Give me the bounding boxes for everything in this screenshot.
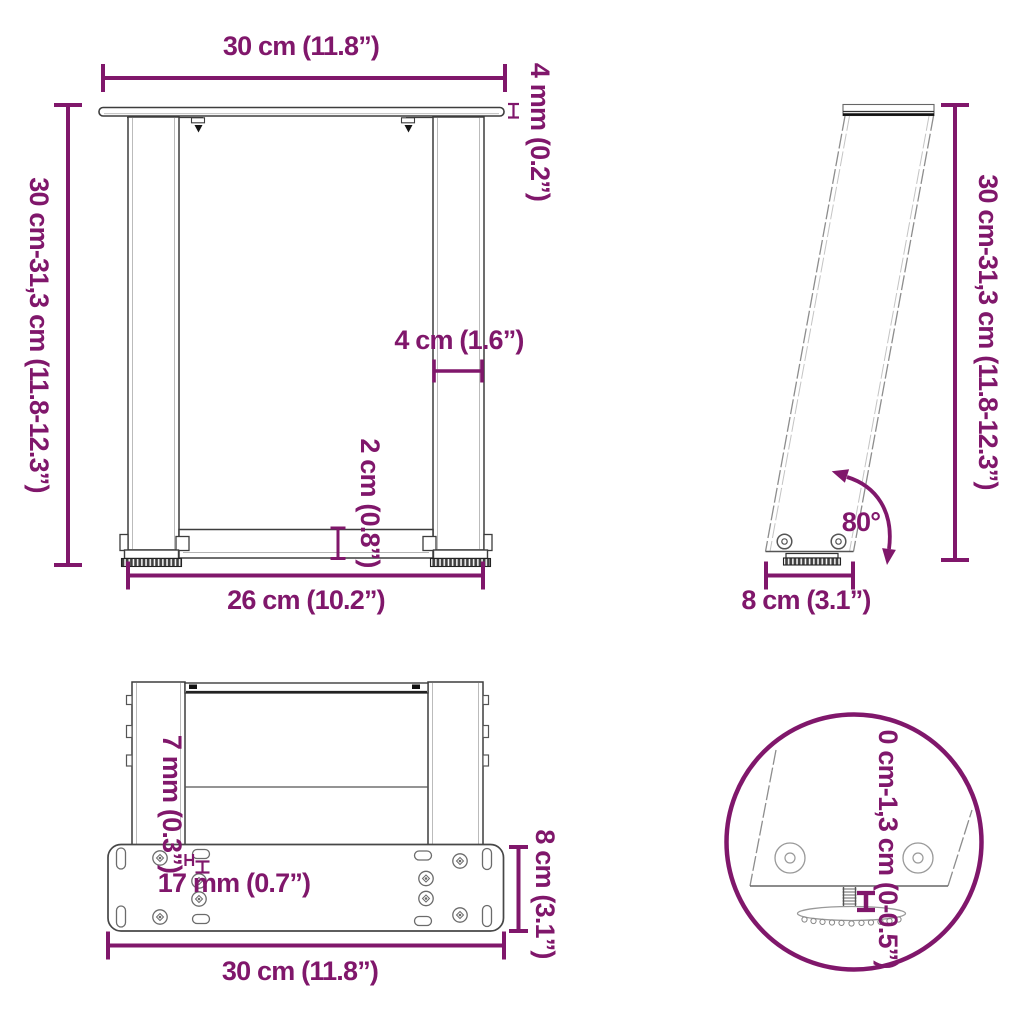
dim-side-height: 30 cm-31,3 cm (11.8-12.3”) bbox=[974, 174, 1002, 489]
side-view-drawing bbox=[766, 105, 935, 566]
dim-front-leg-width: 4 cm (1.6”) bbox=[394, 326, 523, 354]
dimension-diagram: 30 cm (11.8”) 4 mm (0.2”) 30 cm-31,3 cm … bbox=[0, 0, 1024, 1024]
dim-detail-adjust-range: 0 cm-1,3 cm (0-0.5”) bbox=[874, 729, 902, 968]
dim-bottom-plate-depth: 8 cm (3.1”) bbox=[531, 829, 559, 958]
dim-bottom-plate-width: 30 cm (11.8”) bbox=[222, 957, 378, 985]
dim-side-foot-depth: 8 cm (3.1”) bbox=[741, 586, 870, 614]
dim-front-bottom-width: 26 cm (10.2”) bbox=[227, 586, 385, 614]
arrow-down-icon bbox=[882, 548, 896, 565]
dim-bottom-hole-spacing: 17 mm (0.7”) bbox=[158, 869, 310, 897]
dim-bottom-slot-width: 7 mm (0.3”) bbox=[158, 735, 186, 873]
dim-front-crossbar-height: 2 cm (0.8”) bbox=[356, 438, 384, 567]
detail-view-drawing bbox=[727, 715, 982, 970]
magnifier-circle-icon bbox=[727, 715, 982, 970]
dim-side-angle: 80° bbox=[842, 508, 880, 536]
dim-front-plate-thickness: 4 mm (0.2”) bbox=[526, 63, 554, 201]
dim-front-height: 30 cm-31,3 cm (11.8-12.3”) bbox=[25, 177, 53, 492]
dim-front-top-width: 30 cm (11.8”) bbox=[223, 32, 379, 60]
arrow-up-icon bbox=[832, 469, 849, 482]
